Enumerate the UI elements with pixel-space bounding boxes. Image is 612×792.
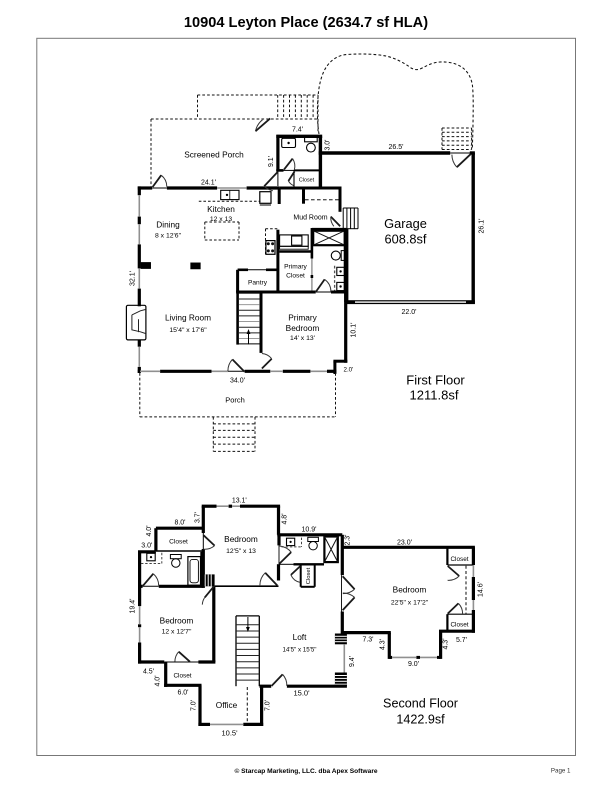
svg-text:10.5': 10.5' bbox=[221, 728, 238, 737]
svg-text:Garage: Garage bbox=[384, 216, 427, 231]
svg-text:Screened Porch: Screened Porch bbox=[184, 150, 244, 160]
svg-text:23.0': 23.0' bbox=[397, 539, 412, 546]
svg-text:1211.8sf: 1211.8sf bbox=[410, 388, 459, 403]
svg-text:15'4" x 17'6": 15'4" x 17'6" bbox=[169, 327, 207, 334]
svg-text:12 x 12'7": 12 x 12'7" bbox=[162, 629, 192, 636]
svg-text:6.0': 6.0' bbox=[177, 690, 188, 697]
svg-text:4.8': 4.8' bbox=[281, 513, 288, 524]
svg-text:22.0': 22.0' bbox=[402, 309, 417, 316]
svg-text:Closet: Closet bbox=[450, 556, 468, 563]
svg-text:7.0': 7.0' bbox=[264, 700, 271, 711]
svg-text:© Starcap Marketing, LLC. dba: © Starcap Marketing, LLC. dba Apex Softw… bbox=[234, 767, 377, 775]
svg-text:13.1': 13.1' bbox=[232, 498, 247, 505]
svg-text:8.0': 8.0' bbox=[174, 519, 185, 526]
svg-text:7.0': 7.0' bbox=[190, 700, 197, 711]
svg-text:9.0': 9.0' bbox=[408, 661, 419, 668]
svg-text:10.9': 10.9' bbox=[302, 526, 317, 533]
svg-text:34.0': 34.0' bbox=[230, 377, 245, 384]
svg-text:10904 Leyton Place (2634.7 sf: 10904 Leyton Place (2634.7 sf HLA) bbox=[184, 15, 428, 31]
svg-text:Closet: Closet bbox=[299, 177, 315, 183]
svg-text:4.0': 4.0' bbox=[146, 525, 153, 536]
svg-text:14.6': 14.6' bbox=[478, 582, 485, 597]
svg-text:9.4': 9.4' bbox=[349, 656, 356, 667]
svg-text:9.1': 9.1' bbox=[268, 156, 275, 167]
svg-text:Living Room: Living Room bbox=[165, 313, 211, 323]
svg-text:1422.9sf: 1422.9sf bbox=[396, 713, 445, 727]
svg-text:608.8sf: 608.8sf bbox=[385, 232, 427, 247]
svg-text:3.7': 3.7' bbox=[194, 512, 201, 523]
svg-text:14' x 13': 14' x 13' bbox=[290, 335, 315, 342]
svg-text:2.3': 2.3' bbox=[345, 534, 352, 545]
svg-text:Mud Room: Mud Room bbox=[293, 215, 327, 222]
svg-text:4.0': 4.0' bbox=[154, 675, 161, 686]
svg-text:Closet: Closet bbox=[173, 673, 191, 680]
svg-text:Porch: Porch bbox=[225, 395, 245, 404]
svg-text:7.4': 7.4' bbox=[292, 126, 303, 133]
svg-text:26.1': 26.1' bbox=[479, 219, 486, 234]
svg-text:5.7': 5.7' bbox=[456, 637, 467, 644]
svg-text:32.1': 32.1' bbox=[130, 271, 137, 286]
svg-text:7.3': 7.3' bbox=[362, 636, 373, 643]
svg-text:10.1': 10.1' bbox=[351, 323, 358, 338]
svg-text:Bedroom: Bedroom bbox=[286, 323, 320, 333]
svg-text:Primary: Primary bbox=[284, 264, 307, 271]
svg-text:4.3': 4.3' bbox=[379, 639, 386, 650]
svg-text:Closet: Closet bbox=[306, 567, 312, 584]
svg-text:Page 1: Page 1 bbox=[551, 768, 571, 775]
svg-text:4.3': 4.3' bbox=[442, 638, 449, 649]
svg-text:14'5" x 15'5": 14'5" x 15'5" bbox=[283, 647, 317, 654]
svg-text:Loft: Loft bbox=[293, 632, 308, 642]
svg-text:4.5': 4.5' bbox=[143, 669, 154, 676]
svg-text:3.0': 3.0' bbox=[141, 542, 152, 549]
svg-text:15.0': 15.0' bbox=[293, 688, 310, 697]
svg-text:Pantry: Pantry bbox=[248, 280, 268, 287]
svg-text:3.0': 3.0' bbox=[324, 139, 331, 150]
svg-text:Kitchen: Kitchen bbox=[207, 204, 235, 214]
svg-text:Closet: Closet bbox=[169, 539, 188, 546]
svg-text:Office: Office bbox=[216, 700, 238, 710]
svg-text:19.4': 19.4' bbox=[130, 599, 137, 614]
svg-text:Bedroom: Bedroom bbox=[160, 616, 194, 626]
svg-text:26.5': 26.5' bbox=[389, 144, 404, 151]
svg-text:First Floor: First Floor bbox=[406, 372, 465, 387]
svg-text:Second Floor: Second Floor bbox=[383, 697, 458, 711]
svg-text:Primary: Primary bbox=[288, 313, 317, 323]
svg-text:Dining: Dining bbox=[156, 220, 180, 230]
svg-text:8 x 12'6": 8 x 12'6" bbox=[155, 233, 182, 240]
svg-text:Bedroom: Bedroom bbox=[224, 534, 258, 544]
svg-text:2.0': 2.0' bbox=[344, 366, 354, 373]
svg-text:24.1': 24.1' bbox=[201, 179, 216, 186]
svg-text:12'5" x 13: 12'5" x 13 bbox=[226, 548, 256, 555]
svg-text:Closet: Closet bbox=[450, 622, 468, 629]
svg-text:22'5" x 17'2": 22'5" x 17'2" bbox=[391, 600, 429, 607]
svg-text:Closet: Closet bbox=[286, 273, 305, 280]
svg-text:Bedroom: Bedroom bbox=[393, 585, 427, 595]
